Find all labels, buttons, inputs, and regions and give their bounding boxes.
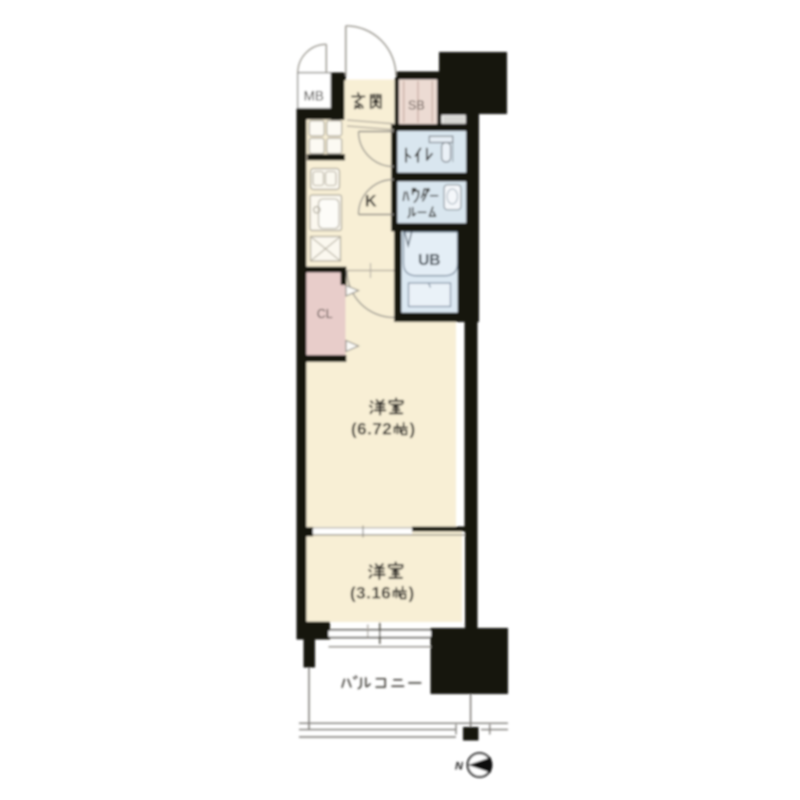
svg-text:N: N: [455, 761, 464, 773]
svg-text:UB: UB: [418, 252, 440, 269]
svg-text:K: K: [365, 192, 377, 210]
svg-text:): ): [410, 420, 416, 439]
svg-text:SB: SB: [408, 99, 425, 113]
svg-text:(3.16: (3.16: [350, 583, 391, 602]
svg-text:MB: MB: [304, 88, 324, 103]
svg-text:(6.72: (6.72: [351, 420, 392, 439]
svg-text:): ): [409, 583, 415, 602]
svg-text:CL: CL: [317, 307, 333, 321]
